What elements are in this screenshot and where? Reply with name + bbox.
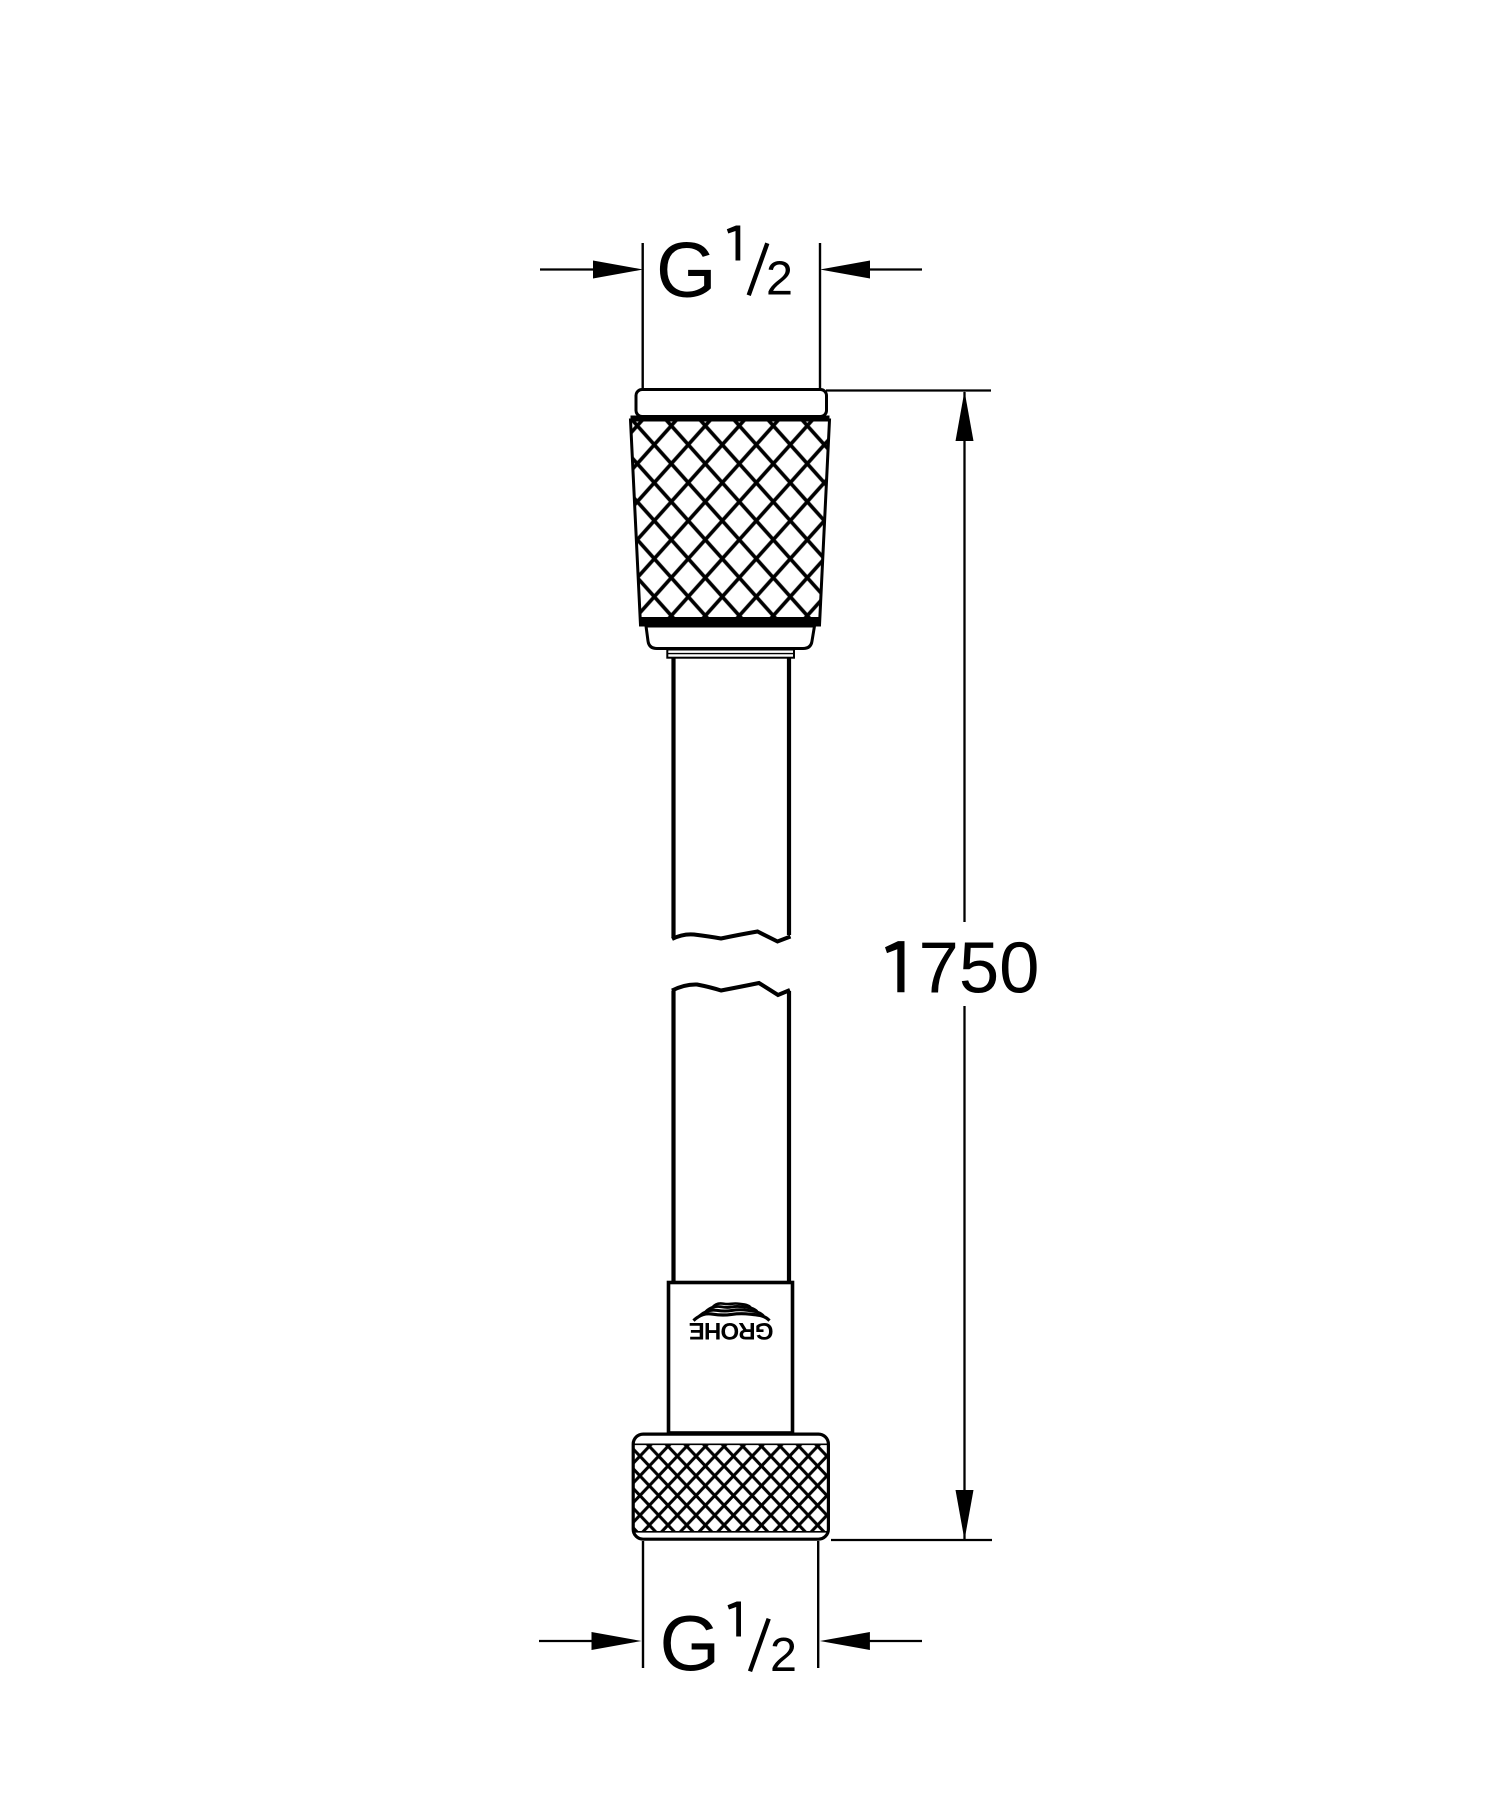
svg-text:2: 2 <box>766 252 793 306</box>
svg-text:2: 2 <box>770 1628 797 1682</box>
svg-text:G: G <box>660 1599 721 1687</box>
svg-text:G: G <box>656 226 717 314</box>
svg-text:GROHE: GROHE <box>689 1317 774 1344</box>
svg-text:750: 750 <box>919 928 1040 1009</box>
